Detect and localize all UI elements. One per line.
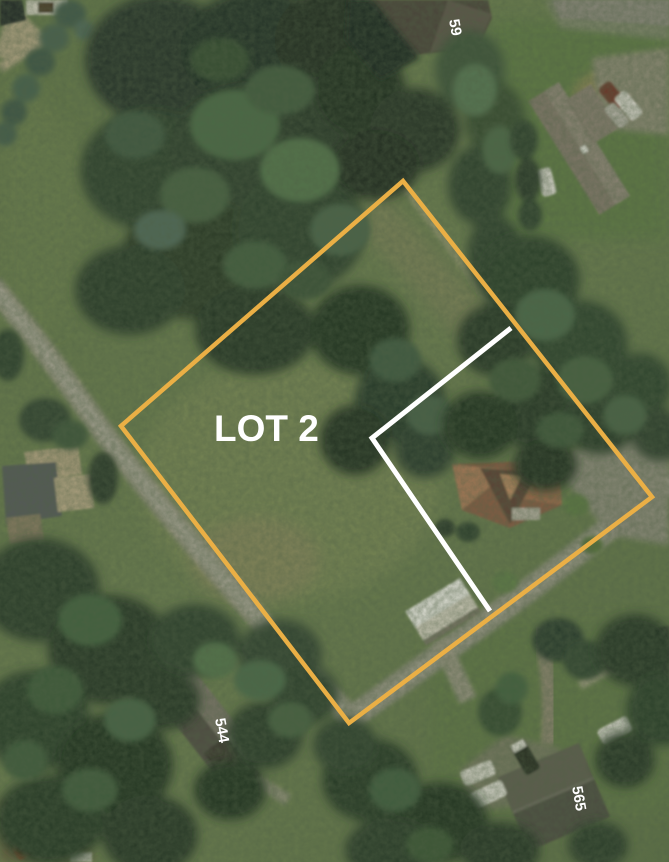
svg-text:LOT 2: LOT 2: [214, 408, 319, 449]
svg-text:59: 59: [445, 18, 465, 37]
